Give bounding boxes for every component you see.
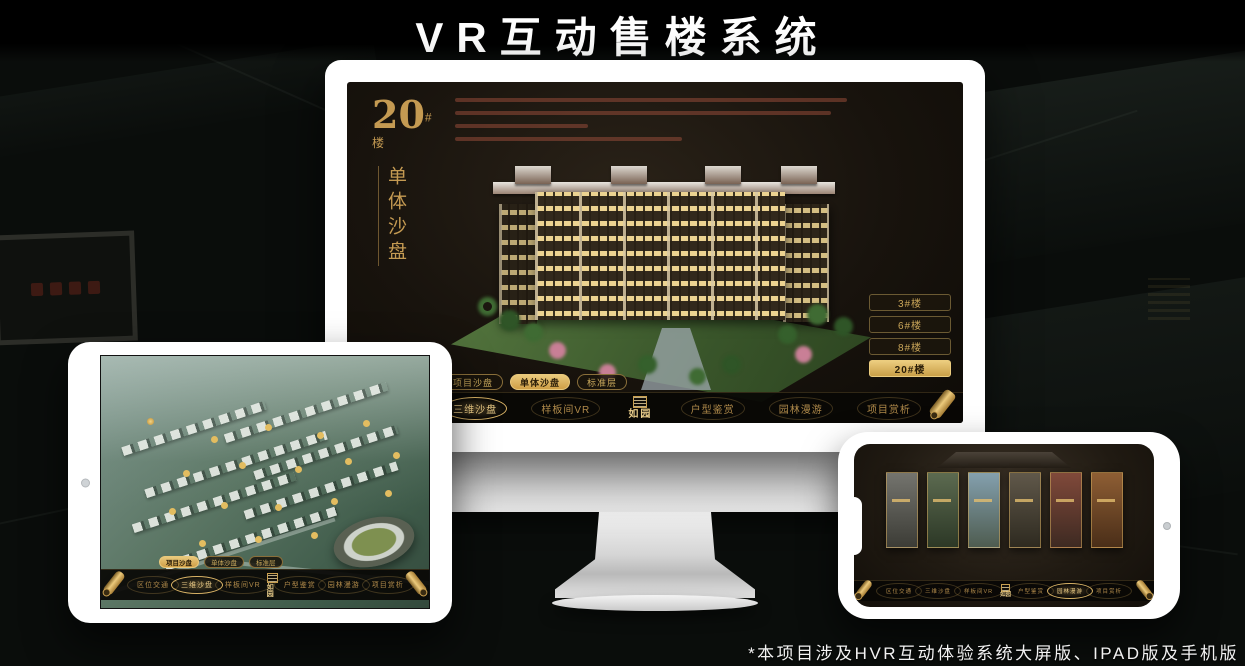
- monitor-base: [552, 595, 758, 611]
- nav-item-unit-plans[interactable]: 户型鉴赏: [685, 399, 741, 418]
- bg-plaque-seal: [49, 282, 61, 295]
- tablet-bottom-nav: 区位交通 三维沙盘 样板间VR 如园 户型鉴赏 园林漫游 项目赏析: [101, 569, 429, 600]
- nav-item-project-gallery[interactable]: 项目赏析: [1090, 585, 1128, 597]
- tab-project-sandbox[interactable]: 项目沙盘: [159, 556, 199, 568]
- page-title: VR互动售楼系统: [0, 4, 1245, 65]
- bg-plaque-seal: [68, 281, 80, 294]
- building-number-badges: [147, 418, 154, 425]
- floor-button-3[interactable]: 3#楼: [869, 294, 951, 311]
- tablet-camera-icon: [81, 478, 90, 487]
- nav-item-garden-tour[interactable]: 园林漫游: [773, 399, 829, 418]
- logo-text: 如园: [628, 410, 652, 420]
- nav-oval: [1086, 583, 1132, 599]
- phone-camera-icon: [1163, 522, 1171, 530]
- tablet-device: 项目沙盘 单体沙盘 标准层 区位交通 三维沙盘 样板间VR 如园 户型鉴赏 园林…: [68, 342, 452, 623]
- nav-item-location[interactable]: 区位交通: [131, 578, 175, 592]
- text-line: [455, 98, 847, 102]
- tab-single-sandbox[interactable]: 单体沙盘: [204, 556, 244, 568]
- floor-button-6[interactable]: 6#楼: [869, 316, 951, 333]
- bg-plaque-seal: [87, 280, 99, 293]
- nav-item-3d-sandbox[interactable]: 三维沙盘: [919, 585, 957, 597]
- nav-oval: [857, 397, 921, 420]
- nav-item-3d-sandbox[interactable]: 三维沙盘: [175, 578, 219, 592]
- building-3d-model[interactable]: [443, 152, 883, 397]
- tab-standard-floor[interactable]: 标准层: [577, 374, 627, 390]
- nav-oval: [531, 397, 600, 420]
- text-line: [455, 124, 588, 128]
- nav-item-3d-sandbox[interactable]: 三维沙盘: [447, 399, 503, 418]
- project-logo: 如园: [628, 396, 652, 420]
- scene-panel[interactable]: [968, 472, 1000, 548]
- scene-panel[interactable]: [1091, 472, 1123, 548]
- nav-oval: [769, 397, 833, 420]
- nav-oval: [443, 397, 507, 420]
- building-number: 20: [372, 92, 425, 137]
- phone-bottom-nav: 区位交通 三维沙盘 样板间VR 如园 户型鉴赏 园林漫游 项目赏析: [854, 580, 1154, 601]
- logo-seal-icon: [633, 396, 647, 408]
- stadium: [328, 509, 419, 575]
- courtyard-gate-silhouette: [924, 452, 1084, 468]
- model-landscape-foliage: [483, 302, 492, 311]
- text-line: [455, 137, 682, 141]
- floor-button-8[interactable]: 8#楼: [869, 338, 951, 355]
- tab-project-sandbox[interactable]: 项目沙盘: [443, 374, 503, 390]
- tablet-screen: 项目沙盘 单体沙盘 标准层 区位交通 三维沙盘 样板间VR 如园 户型鉴赏 园林…: [100, 355, 430, 609]
- phone-notch: [852, 497, 862, 555]
- text-line: [455, 111, 831, 115]
- nav-item-unit-plans[interactable]: 户型鉴赏: [278, 578, 322, 592]
- scene-panel[interactable]: [927, 472, 959, 548]
- model-wing-right: [783, 204, 829, 322]
- scene-panel[interactable]: [1050, 472, 1082, 548]
- nav-item-garden-tour[interactable]: 园林漫游: [1051, 585, 1089, 597]
- model-dormer: [515, 166, 551, 184]
- nav-item-project-gallery[interactable]: 项目赏析: [861, 399, 917, 418]
- nav-item-project-gallery[interactable]: 项目赏析: [366, 578, 410, 592]
- tablet-view-tabs: 项目沙盘 单体沙盘 标准层: [159, 556, 283, 568]
- building-headline: 20#楼 单体沙盘: [372, 96, 432, 266]
- model-dormer: [705, 166, 741, 184]
- bg-plaque-seal: [30, 282, 42, 295]
- phone-device: 区位交通 三维沙盘 样板间VR 如园 户型鉴赏 园林漫游 项目赏析: [838, 432, 1180, 619]
- scene-panel[interactable]: [886, 472, 918, 548]
- scene-panel-carousel: [854, 472, 1154, 548]
- nav-item-location[interactable]: 区位交通: [880, 585, 918, 597]
- floor-button-20[interactable]: 20#楼: [869, 360, 951, 377]
- model-facade: [535, 192, 785, 320]
- nav-item-showroom-vr[interactable]: 样板间VR: [535, 399, 596, 418]
- bg-aerial-strip: [949, 44, 1245, 265]
- model-dormer: [781, 166, 817, 184]
- footnote-text: *本项目涉及HVR互动体验系统大屏版、IPAD版及手机版: [748, 639, 1239, 664]
- building-subtitle: 单体沙盘: [378, 166, 410, 266]
- phone-screen: 区位交通 三维沙盘 样板间VR 如园 户型鉴赏 园林漫游 项目赏析: [854, 444, 1154, 607]
- nav-item-showroom-vr[interactable]: 样板间VR: [219, 578, 267, 592]
- nav-oval: [215, 576, 271, 594]
- nav-oval: [954, 583, 1003, 599]
- bg-gold-grid: [1148, 278, 1190, 320]
- scene-panel[interactable]: [1009, 472, 1041, 548]
- nav-item-garden-tour[interactable]: 园林漫游: [322, 578, 366, 592]
- model-dormer: [611, 166, 647, 184]
- nav-oval: [681, 397, 745, 420]
- view-tabs: 项目沙盘 单体沙盘 标准层: [443, 374, 627, 390]
- model-wing-left: [499, 204, 537, 324]
- tab-standard-floor[interactable]: 标准层: [249, 556, 283, 568]
- nav-item-unit-plans[interactable]: 户型鉴赏: [1012, 585, 1050, 597]
- building-description-placeholder: [455, 98, 847, 150]
- nav-item-showroom-vr[interactable]: 样板间VR: [958, 585, 999, 597]
- tab-single-sandbox[interactable]: 单体沙盘: [510, 374, 570, 390]
- bg-plaque: [0, 231, 138, 346]
- floor-selector: 3#楼 6#楼 8#楼 20#楼: [869, 294, 951, 377]
